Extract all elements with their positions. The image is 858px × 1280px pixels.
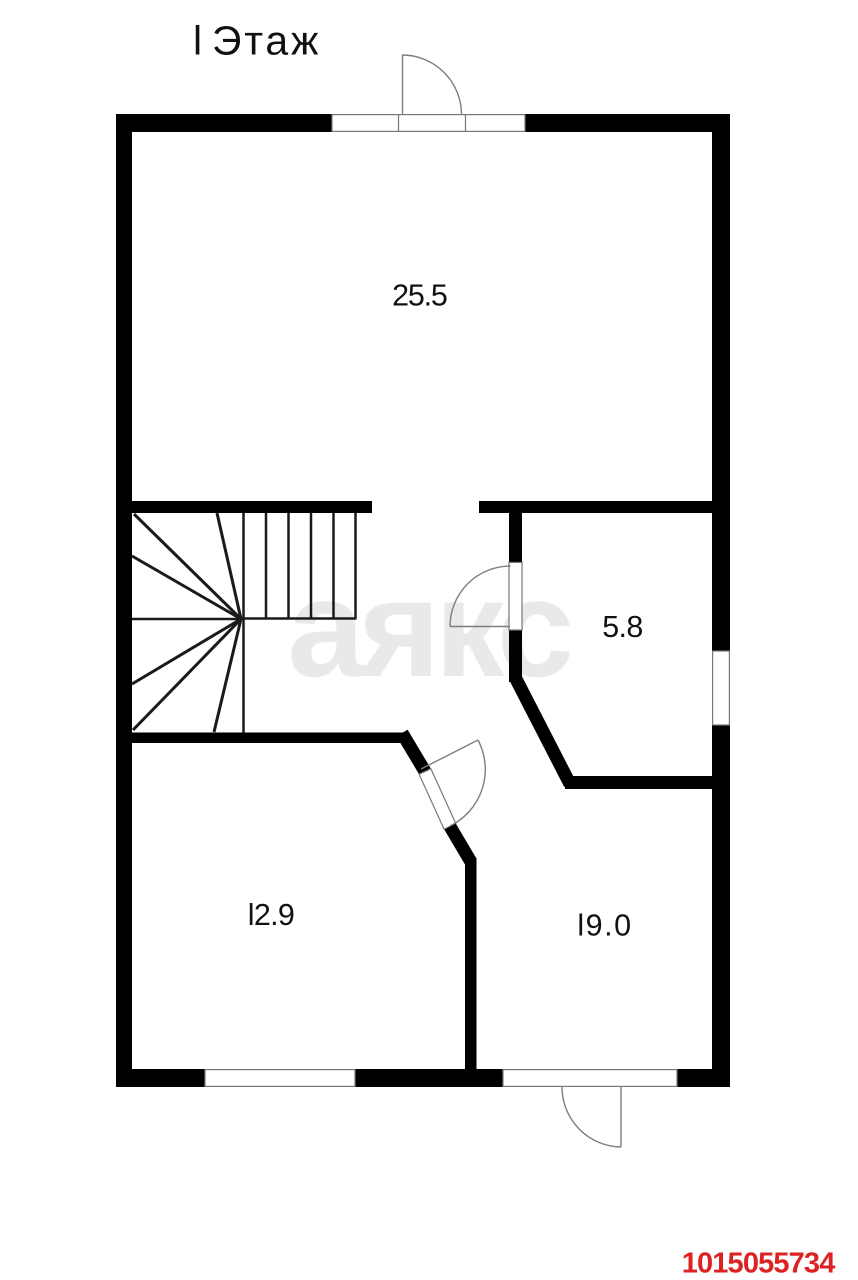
svg-text:аякс: аякс (287, 551, 570, 706)
svg-text:l: l (193, 18, 202, 64)
svg-text:25.5: 25.5 (392, 279, 447, 313)
svg-text:5.8: 5.8 (602, 610, 643, 644)
svg-text:l9.0: l9.0 (577, 909, 632, 943)
svg-text:Этаж: Этаж (212, 18, 321, 64)
svg-text:l2.9: l2.9 (248, 898, 294, 932)
svg-text:1015055734: 1015055734 (682, 1248, 836, 1280)
